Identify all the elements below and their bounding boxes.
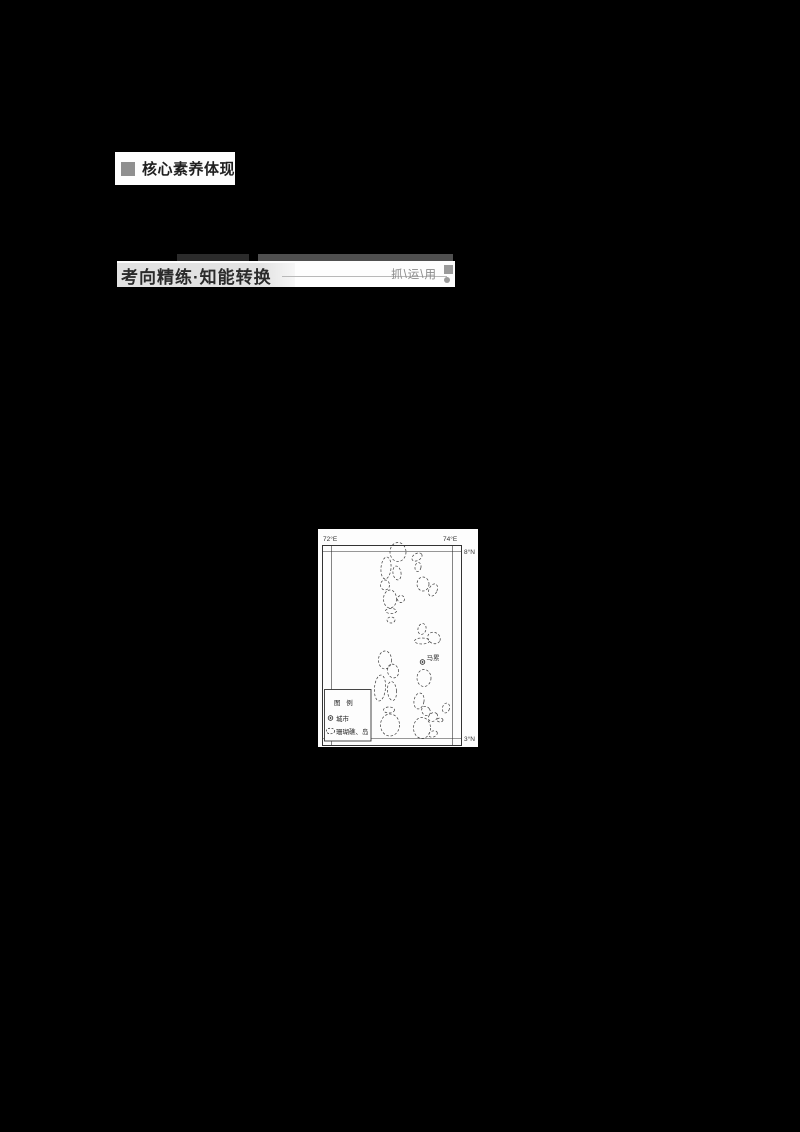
atoll-outline bbox=[381, 714, 400, 736]
accent-square-icon bbox=[444, 265, 453, 274]
bullet-square-icon bbox=[121, 162, 135, 176]
atoll-outline bbox=[415, 638, 430, 644]
atoll-outline bbox=[373, 675, 386, 702]
core-literacy-header: 核心素养体现 bbox=[115, 152, 235, 185]
atoll-outline bbox=[381, 580, 390, 590]
legend-city-label: 城市 bbox=[336, 714, 350, 723]
atoll-outline bbox=[384, 590, 397, 608]
atoll-outline bbox=[417, 670, 431, 687]
header-bar-mid bbox=[258, 254, 453, 261]
exam-practice-tagline: 抓\运\用 bbox=[391, 266, 437, 282]
city-marker-icon bbox=[420, 660, 425, 665]
atoll-outline bbox=[386, 609, 397, 614]
city-label: 马累 bbox=[427, 654, 441, 662]
legend-reef-label: 珊瑚礁、岛 bbox=[336, 727, 369, 736]
atoll-outline bbox=[427, 582, 440, 597]
atoll-outline bbox=[387, 617, 395, 623]
maldives-map-svg: 72°E 74°E 8°N 3°N 马累 图 例 城市 珊瑚礁、岛 bbox=[318, 529, 478, 747]
atoll-outline bbox=[437, 718, 443, 722]
atoll-outlines bbox=[373, 543, 450, 739]
atoll-outline bbox=[414, 718, 431, 739]
atoll-outline bbox=[386, 663, 400, 679]
legend-title: 图 例 bbox=[334, 698, 355, 707]
atoll-outline bbox=[414, 562, 421, 572]
lon-label-72e: 72°E bbox=[323, 535, 338, 543]
atoll-outline bbox=[413, 692, 426, 709]
header-bar-dark bbox=[177, 254, 249, 261]
map-legend: 图 例 城市 珊瑚礁、岛 bbox=[325, 690, 372, 742]
atoll-outline bbox=[398, 596, 405, 603]
atoll-outline bbox=[410, 551, 423, 563]
atoll-outline bbox=[380, 557, 392, 580]
lat-label-3n: 3°N bbox=[464, 735, 475, 743]
lat-label-8n: 8°N bbox=[464, 548, 475, 556]
exam-practice-header: 考向精练·知能转换 抓\运\用 bbox=[117, 254, 455, 288]
exam-practice-title: 考向精练·知能转换 bbox=[121, 263, 272, 288]
atoll-outline bbox=[392, 565, 402, 580]
map-figure: 72°E 74°E 8°N 3°N 马累 图 例 城市 珊瑚礁、岛 bbox=[318, 529, 478, 747]
atoll-outline bbox=[441, 702, 450, 713]
lon-label-74e: 74°E bbox=[443, 535, 458, 543]
accent-dot-icon bbox=[444, 277, 450, 283]
atoll-outline bbox=[426, 630, 443, 646]
atoll-outline bbox=[387, 681, 398, 701]
atoll-outline bbox=[384, 707, 395, 713]
core-literacy-title: 核心素养体现 bbox=[142, 158, 235, 179]
atoll-outline bbox=[417, 577, 429, 591]
scanned-page: 核心素养体现 考向精练·知能转换 抓\运\用 72°E bbox=[0, 0, 800, 1132]
atoll-outline bbox=[379, 651, 392, 669]
atoll-outline bbox=[417, 623, 428, 636]
